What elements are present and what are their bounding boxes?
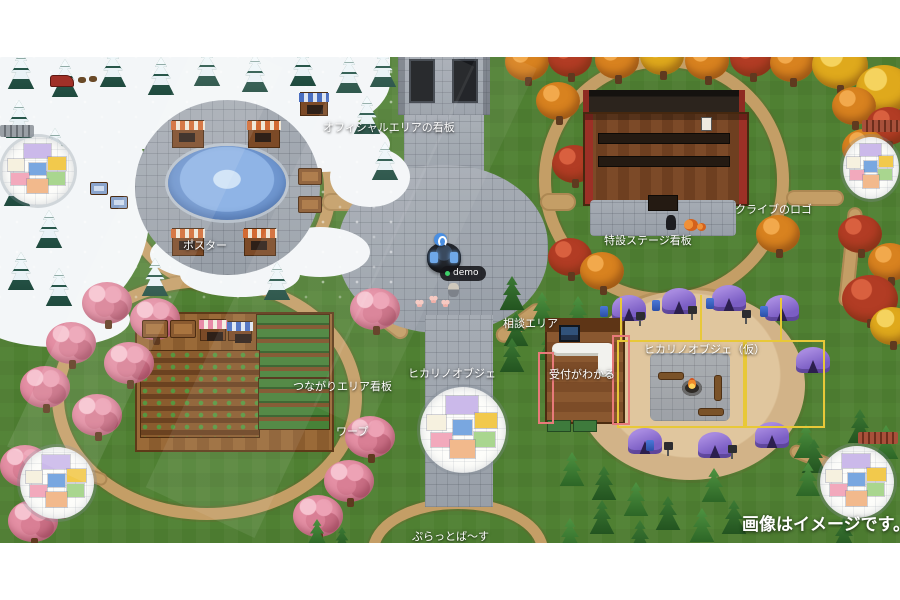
virtual-world-map: demo オフィシャルエリアの看板 ポスター 特設ステージ看板 クライブのロゴ … (0, 57, 900, 543)
cherry-tree (350, 288, 400, 330)
highlight-line-yellow (700, 295, 702, 342)
deck-stall (228, 321, 252, 341)
wall-picture (559, 325, 580, 342)
fence (0, 125, 34, 137)
cherry-tree (72, 394, 122, 436)
market-stall (248, 120, 280, 148)
minimap-cell (67, 484, 85, 497)
pine-tree (588, 500, 616, 534)
fence (862, 120, 900, 132)
official-area-signboard (300, 92, 328, 116)
camp-grill (742, 310, 751, 318)
minimap-cell (879, 156, 893, 167)
tower-window (409, 59, 435, 103)
minimap-cell (446, 396, 479, 413)
autumn-tree (580, 252, 624, 290)
highlight-rect-red (538, 352, 554, 424)
minimap-cell (867, 483, 885, 496)
minimap-cell (864, 161, 877, 172)
minimap-cell (847, 157, 859, 168)
label-reception: 受付がわかる (549, 368, 615, 381)
minimap-cell (867, 468, 886, 481)
camp-tent (698, 432, 732, 458)
pine-tree (688, 508, 716, 542)
minimap-cell (475, 413, 497, 428)
stage-podium (648, 195, 678, 211)
cherry-tree (324, 460, 374, 502)
camp-barrel (652, 300, 660, 311)
minimap-cell (67, 469, 86, 482)
label-stage-sign: 特設ステージ看板 (604, 234, 692, 247)
warp-pad-center[interactable] (420, 387, 506, 473)
minimap-cell (46, 492, 67, 507)
path-plaza-to-autumn (540, 193, 576, 211)
label-warp: ワープ (336, 425, 368, 438)
tower-window (452, 59, 478, 103)
camp-tent (712, 285, 746, 311)
pin-badge-icon (434, 233, 447, 246)
minimap-cell (29, 163, 46, 175)
label-official-sign: オフィシャルエリアの看板 (323, 121, 455, 134)
petal-sprite (429, 295, 438, 303)
pumpkin-decoration (697, 223, 706, 231)
label-logo: クライブのロゴ (735, 203, 812, 216)
autumn-tree (536, 82, 580, 120)
label-hikari-object-temp: ヒカリノオブジェ（仮） (644, 343, 765, 356)
minimap-cell (450, 440, 475, 458)
camp-barrel (706, 298, 714, 309)
crop-rows (256, 314, 330, 378)
stage-table (598, 156, 730, 167)
screenshot-root: demo オフィシャルエリアの看板 ポスター 特設ステージ看板 クライブのロゴ … (0, 0, 900, 600)
minimap-cell (431, 433, 452, 448)
green-bench (573, 420, 597, 432)
autumn-tree (505, 57, 549, 81)
minimap-cell (846, 491, 867, 506)
snow-table (110, 196, 128, 209)
pine-tree (556, 518, 584, 543)
camp-tent (765, 295, 799, 321)
minimap-cell (453, 420, 473, 435)
camp-barrel (600, 306, 608, 317)
deck-stall (200, 319, 226, 341)
reindeer (89, 76, 97, 82)
cherry-tree (82, 282, 132, 324)
camp-grill (636, 312, 645, 320)
petal-sprite (441, 299, 450, 307)
snow-patch (330, 147, 410, 207)
camp-tent (628, 428, 662, 454)
autumn-tree (770, 57, 814, 82)
minimap-cell (8, 159, 24, 171)
fence (858, 432, 898, 444)
deck-table (170, 320, 196, 338)
minimap-cell (848, 473, 865, 486)
frozen-fountain (168, 146, 286, 220)
minimap-cell (474, 432, 495, 447)
autumn-tree (548, 57, 592, 77)
warp-pad-right[interactable] (843, 137, 899, 199)
sled (50, 75, 74, 87)
avatar-nametag[interactable]: demo (440, 266, 486, 281)
reindeer (78, 77, 86, 83)
stage-roof (583, 90, 745, 112)
cherry-tree (104, 342, 154, 384)
npc-character (448, 283, 459, 297)
warp-pad-bottom-left[interactable] (20, 447, 94, 519)
label-platverse: ぷらっとば〜す (412, 530, 489, 543)
minimap-cell (427, 415, 446, 430)
camp-grill (728, 445, 737, 453)
minimap-cell (42, 455, 70, 469)
warp-pad-bottom-right[interactable] (820, 446, 894, 518)
snow-table (90, 182, 108, 195)
minimap-cell (27, 179, 48, 193)
minimap-cell (48, 157, 66, 169)
garden-plots (140, 350, 260, 438)
camp-barrel (760, 306, 768, 317)
stage-notice (701, 117, 712, 131)
minimap-cell (878, 169, 891, 180)
picnic-table (298, 168, 322, 185)
cherry-tree (20, 366, 70, 408)
minimap-cell (24, 144, 51, 158)
highlight-line-yellow (780, 298, 782, 342)
pine-tree (626, 520, 654, 543)
minimap-cell (860, 144, 881, 156)
pine-tree (558, 452, 586, 486)
minimap-cell (30, 485, 48, 497)
minimap-cell (830, 484, 848, 496)
warp-pad-left[interactable] (2, 137, 74, 205)
minimap-cell (11, 173, 28, 185)
pumpkin-decoration (684, 219, 698, 231)
minimap-cell (863, 175, 879, 188)
label-poster: ポスター (183, 239, 227, 252)
minimap-cell (842, 454, 870, 468)
minimap-cell (48, 474, 65, 487)
market-stall (172, 120, 204, 148)
label-consult-area: 相談エリア (503, 317, 558, 330)
label-hikari-object: ヒカリノオブジェ (408, 367, 496, 380)
minimap-cell (826, 470, 842, 482)
poster-stall (244, 228, 276, 256)
minimap-cell (26, 471, 42, 483)
pine-tree (590, 466, 618, 500)
cherry-tree (46, 322, 96, 364)
avatar-name: demo (453, 269, 479, 278)
online-dot (445, 271, 450, 276)
label-tsunagari-sign: つながりエリア看板 (293, 380, 392, 393)
picnic-table (298, 196, 322, 213)
pine-tree (654, 496, 682, 530)
camp-barrel (646, 440, 654, 451)
minimap-cell (47, 172, 64, 184)
petal-sprite (415, 299, 424, 307)
pine-tree (622, 482, 650, 516)
deck-table (142, 320, 168, 338)
autumn-tree (730, 57, 774, 77)
image-disclaimer-note: 画像はイメージです。 (742, 510, 900, 535)
stage-table (598, 133, 730, 144)
camp-grill (688, 306, 697, 314)
autumn-tree (756, 215, 800, 253)
camp-grill (664, 442, 673, 450)
autumn-tree (870, 307, 900, 345)
mascot-figure (666, 215, 676, 230)
